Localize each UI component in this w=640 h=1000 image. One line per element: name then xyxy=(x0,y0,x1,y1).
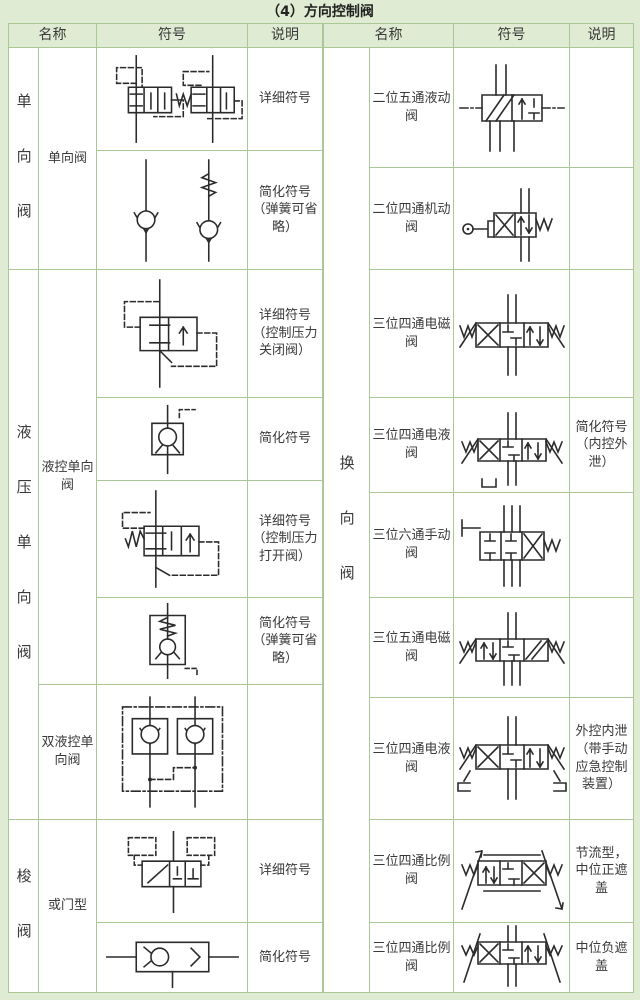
pilot-check-spring-simplified-icon xyxy=(97,599,247,683)
three-pos-four-way-eh-manual-icon xyxy=(454,699,569,818)
group-label: 单向阀 xyxy=(13,93,33,258)
cell-symbol xyxy=(97,151,248,270)
double-pilot-check-icon xyxy=(97,686,247,818)
cell-name: 二位四通机动阀 xyxy=(370,168,454,270)
cell-desc xyxy=(570,48,634,168)
cell-desc: 简化符号（弹簧可省略） xyxy=(248,598,323,685)
group-shuttle-valve: 梭阀 xyxy=(9,820,39,993)
table-row: 换向阀 二位五通液动阀 xyxy=(324,48,634,168)
shuttle-simplified-icon xyxy=(97,924,247,991)
pilot-check-open-detailed-icon xyxy=(97,482,247,596)
check-valve-simplified-icon xyxy=(97,153,247,268)
cell-symbol xyxy=(97,481,248,598)
table-row: 三位四通比例阀 中位负遮盖 xyxy=(324,923,634,993)
three-pos-six-way-manual-icon xyxy=(454,494,569,596)
three-pos-four-way-proportional-negative-icon xyxy=(454,924,569,991)
cell-desc: 详细符号 xyxy=(248,48,323,151)
cell-symbol xyxy=(97,820,248,923)
header-name: 名称 xyxy=(324,24,454,48)
table-row: 三位四通电液阀 简化符号（内控外泄） xyxy=(324,398,634,493)
cell-name: 三位六通手动阀 xyxy=(370,493,454,598)
cell-name: 三位四通电液阀 xyxy=(370,398,454,493)
header-desc: 说明 xyxy=(248,24,323,48)
subgroup-double-pilot-check-valve: 双液控单向阀 xyxy=(39,685,97,820)
header-symbol: 符号 xyxy=(454,24,570,48)
cell-symbol xyxy=(454,270,570,398)
cell-name: 三位四通电磁阀 xyxy=(370,270,454,398)
check-valve-detailed-icon xyxy=(97,49,247,149)
valve-symbol-table: （4）方向控制阀 名称 符号 说明 单向阀 单向阀 详细符号 简化符号（弹簧可省… xyxy=(0,0,640,1000)
cell-symbol xyxy=(97,48,248,151)
table-row: 三位四通比例阀 节流型，中位正遮盖 xyxy=(324,820,634,923)
group-hydraulic-check-valve: 液压单向阀 xyxy=(9,270,39,820)
header-row: 名称 符号 说明 xyxy=(324,24,634,48)
pilot-check-simplified-icon xyxy=(97,399,247,479)
cell-symbol xyxy=(454,923,570,993)
three-pos-four-way-proportional-throttle-icon xyxy=(454,821,569,921)
table-row: 二位四通机动阀 xyxy=(324,168,634,270)
table-row: 三位四通电磁阀 xyxy=(324,270,634,398)
cell-desc: 节流型，中位正遮盖 xyxy=(570,820,634,923)
table-row: 双液控单向阀 xyxy=(9,685,323,820)
right-table: 名称 符号 说明 换向阀 二位五通液动阀 二位四通机动阀 三位四通电磁阀 xyxy=(323,23,634,993)
cell-desc xyxy=(570,168,634,270)
cell-symbol xyxy=(97,270,248,398)
cell-name: 三位五通电磁阀 xyxy=(370,598,454,698)
cell-symbol xyxy=(454,820,570,923)
group-check-valve: 单向阀 xyxy=(9,48,39,270)
table-area: 名称 符号 说明 单向阀 单向阀 详细符号 简化符号（弹簧可省略） 液压单向阀 … xyxy=(8,23,632,993)
three-pos-five-way-solenoid-icon xyxy=(454,599,569,696)
shuttle-detailed-icon xyxy=(97,821,247,921)
cell-symbol xyxy=(454,398,570,493)
cell-desc: 详细符号 xyxy=(248,820,323,923)
three-pos-four-way-solenoid-icon xyxy=(454,271,569,396)
cell-name: 三位四通比例阀 xyxy=(370,923,454,993)
page-title: （4）方向控制阀 xyxy=(8,2,632,23)
table-row: 三位五通电磁阀 xyxy=(324,598,634,698)
cell-name: 二位五通液动阀 xyxy=(370,48,454,168)
cell-name: 三位四通比例阀 xyxy=(370,820,454,923)
group-label: 梭阀 xyxy=(13,868,33,978)
cell-symbol xyxy=(97,598,248,685)
cell-name: 三位四通电液阀 xyxy=(370,698,454,820)
cell-symbol xyxy=(454,48,570,168)
header-row: 名称 符号 说明 xyxy=(9,24,323,48)
cell-desc xyxy=(570,598,634,698)
group-label: 液压单向阀 xyxy=(13,424,33,699)
cell-desc: 简化符号 xyxy=(248,923,323,993)
group-directional-valve: 换向阀 xyxy=(324,48,370,993)
cell-desc: 简化符号（弹簧可省略） xyxy=(248,151,323,270)
cell-desc xyxy=(570,493,634,598)
cell-symbol xyxy=(454,168,570,270)
three-pos-four-way-eh-simplified-icon xyxy=(454,399,569,491)
table-row: 三位四通电液阀 外控内泄（带手动应急控制装置） xyxy=(324,698,634,820)
cell-symbol xyxy=(97,398,248,481)
header-name: 名称 xyxy=(9,24,97,48)
cell-desc: 简化符号 xyxy=(248,398,323,481)
left-table: 名称 符号 说明 单向阀 单向阀 详细符号 简化符号（弹簧可省略） 液压单向阀 … xyxy=(8,23,323,993)
cell-symbol xyxy=(454,698,570,820)
subgroup-check-valve: 单向阀 xyxy=(39,48,97,270)
header-desc: 说明 xyxy=(570,24,634,48)
cell-desc: 外控内泄（带手动应急控制装置） xyxy=(570,698,634,820)
subgroup-pilot-check-valve: 液控单向阀 xyxy=(39,270,97,685)
cell-symbol xyxy=(97,685,248,820)
cell-desc: 详细符号（控制压力关闭阀） xyxy=(248,270,323,398)
cell-symbol xyxy=(454,598,570,698)
table-row: 单向阀 单向阀 详细符号 xyxy=(9,48,323,151)
table-row: 三位六通手动阀 xyxy=(324,493,634,598)
table-row: 液压单向阀 液控单向阀 详细符号（控制压力关闭阀） xyxy=(9,270,323,398)
table-row: 梭阀 或门型 详细符号 xyxy=(9,820,323,923)
cell-desc: 详细符号（控制压力打开阀） xyxy=(248,481,323,598)
cell-symbol xyxy=(97,923,248,993)
two-pos-four-way-mechanical-icon xyxy=(454,169,569,268)
cell-desc: 中位负遮盖 xyxy=(570,923,634,993)
header-symbol: 符号 xyxy=(97,24,248,48)
cell-desc xyxy=(248,685,323,820)
subgroup-or-gate: 或门型 xyxy=(39,820,97,993)
group-label: 换向阀 xyxy=(336,455,356,620)
cell-desc: 简化符号（内控外泄） xyxy=(570,398,634,493)
pilot-check-close-detailed-icon xyxy=(97,271,247,396)
cell-symbol xyxy=(454,493,570,598)
cell-desc xyxy=(570,270,634,398)
two-pos-five-way-hydraulic-icon xyxy=(454,49,569,166)
